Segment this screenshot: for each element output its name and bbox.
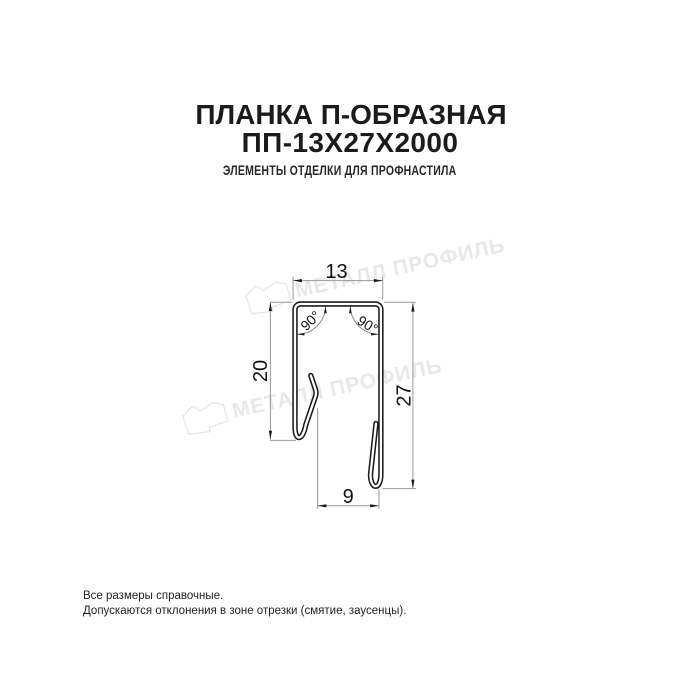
- svg-text:27: 27: [394, 384, 416, 406]
- svg-text:90°: 90°: [297, 307, 323, 333]
- svg-text:9: 9: [343, 486, 354, 508]
- svg-text:13: 13: [325, 261, 347, 283]
- svg-text:90°: 90°: [354, 312, 380, 337]
- svg-text:20: 20: [250, 360, 272, 382]
